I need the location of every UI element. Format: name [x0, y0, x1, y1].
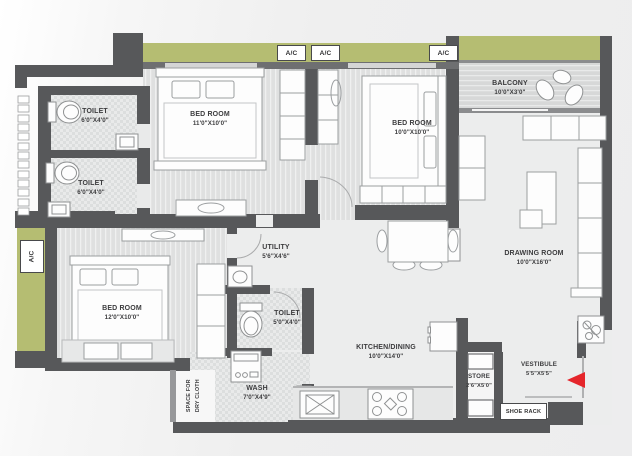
duct-shaft-squares	[18, 96, 29, 215]
ac-label: A/C	[438, 50, 450, 57]
ac-box-left: A/C	[20, 240, 44, 273]
ac-label: A/C	[28, 251, 35, 263]
plant-icon	[578, 316, 604, 343]
ac-label: A/C	[320, 50, 332, 57]
shoe-rack-box: SHOE RACK	[500, 403, 547, 420]
floor-plan-svg	[0, 0, 632, 456]
floor-plan-canvas: TOILET 6'0"X4'0" TOILET 6'0"X4'0" BED RO…	[0, 0, 632, 456]
ac-box-1: A/C	[277, 45, 306, 61]
shoe-rack-label: SHOE RACK	[506, 409, 541, 415]
ac-box-3: A/C	[429, 45, 458, 61]
ac-label: A/C	[286, 50, 298, 57]
ac-box-2: A/C	[311, 45, 340, 61]
